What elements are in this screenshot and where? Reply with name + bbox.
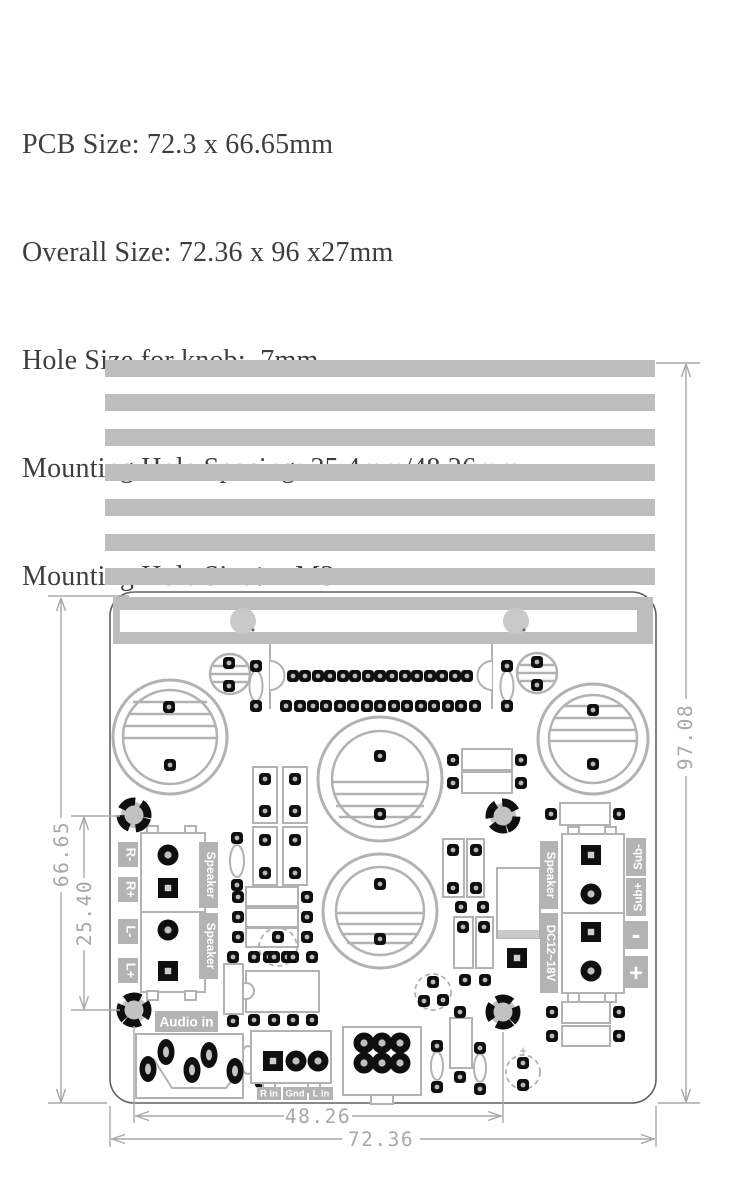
dim-pcb-width: 72.36 bbox=[348, 1128, 414, 1151]
mounting-hole-top-right bbox=[486, 799, 519, 832]
capacitor-top-right bbox=[538, 684, 648, 794]
amp-pad-row-top bbox=[287, 670, 473, 682]
label-l-minus: L- bbox=[124, 925, 139, 937]
amp-pad-row-bottom bbox=[280, 700, 481, 712]
label-sub-minus: Sub- bbox=[633, 844, 645, 870]
dim-overall-height: 97.08 bbox=[674, 704, 697, 770]
label-speaker-left-top: Speaker bbox=[204, 852, 218, 899]
mounting-hole-top-left bbox=[117, 798, 150, 831]
label-plus: + bbox=[629, 960, 643, 987]
label-audio-in: Audio in bbox=[160, 1015, 214, 1030]
label-r-plus: R+ bbox=[124, 881, 139, 898]
product-dimension-image: { "specs": { "pcb_size": "PCB Size: 72.3… bbox=[0, 0, 750, 1182]
capacitor-top-left bbox=[113, 680, 227, 794]
capacitor-center-top bbox=[318, 717, 442, 841]
heatsink-fins bbox=[105, 360, 655, 585]
terminal-right: Speaker DC12~18V Sub- Sub+ - + bbox=[540, 827, 648, 1002]
label-speaker-right: Speaker bbox=[544, 852, 558, 899]
label-minus: - bbox=[632, 919, 641, 949]
heatsink-clamp-bar bbox=[113, 597, 653, 644]
pcb-dimension-drawing: + R- R+ L- L+ Speaker Speaker bbox=[0, 0, 750, 1182]
label-dc-power: DC12~18V bbox=[544, 925, 556, 982]
label-gnd: Gnd bbox=[286, 1089, 305, 1100]
label-l-plus: L+ bbox=[124, 963, 139, 979]
label-r-minus: R- bbox=[124, 848, 139, 862]
label-r-in: R in bbox=[260, 1089, 278, 1100]
dim-mount-spacing-v: 25.40 bbox=[73, 880, 96, 946]
dim-pcb-height: 66.65 bbox=[50, 821, 73, 887]
label-speaker-left-bottom: Speaker bbox=[204, 923, 218, 970]
label-sub-plus: Sub+ bbox=[633, 882, 645, 911]
switch-footprint bbox=[343, 1027, 421, 1104]
rca-input-connector: R in Gnd L in bbox=[251, 1031, 333, 1100]
film-capacitor bbox=[497, 868, 540, 938]
label-l-in: L in bbox=[313, 1089, 330, 1100]
capacitor-center-bottom bbox=[323, 854, 437, 968]
dim-mount-spacing-h: 48.26 bbox=[285, 1105, 351, 1128]
